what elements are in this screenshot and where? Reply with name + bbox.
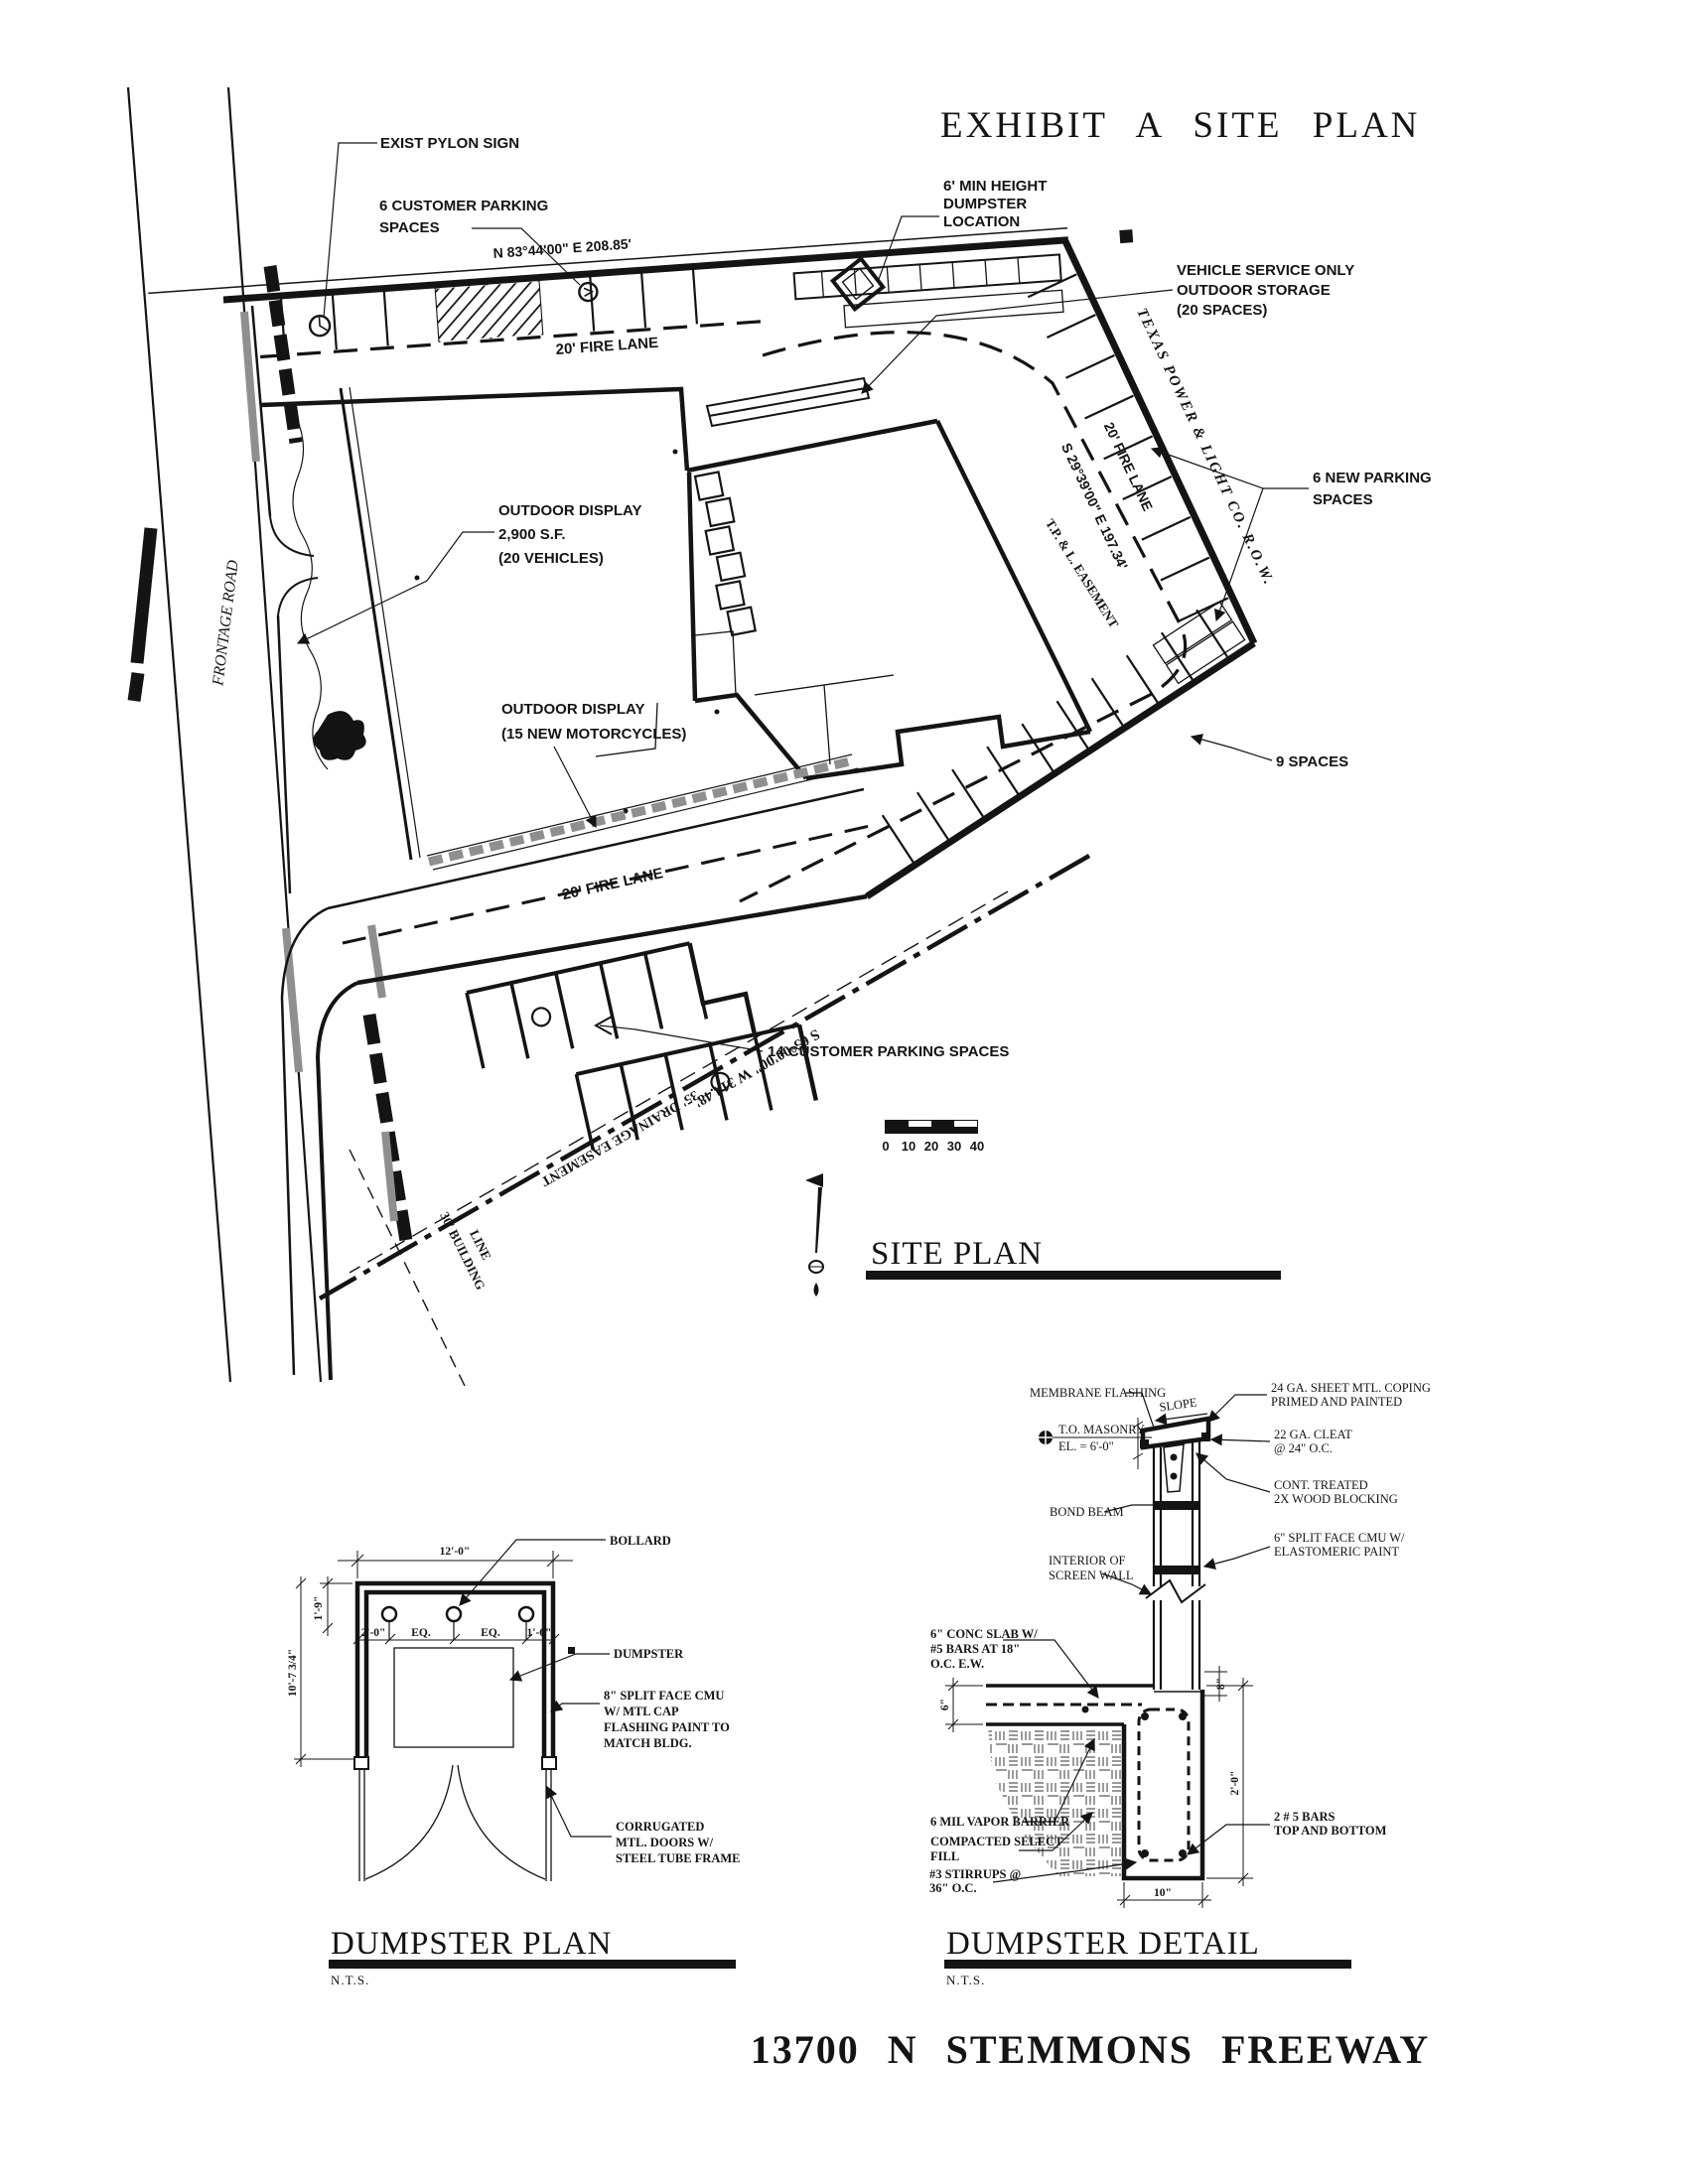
bond-beam-band — [1154, 1501, 1199, 1510]
outdoor-display-label-1: OUTDOOR DISPLAY — [498, 502, 641, 519]
slab-label-1: 6" CONC SLAB W/ — [930, 1627, 1038, 1641]
cleat-label-2: @ 24" O.C. — [1274, 1441, 1333, 1455]
spaces-9-label: 9 SPACES — [1276, 753, 1348, 770]
dumpster-location-label-1: 6' MIN HEIGHT — [943, 178, 1047, 195]
customer-parking-14-label: 14 CUSTOMER PARKING SPACES — [768, 1043, 1009, 1060]
blocking-label-2: 2X WOOD BLOCKING — [1274, 1492, 1398, 1506]
membrane-label: MEMBRANE FLASHING — [1030, 1386, 1166, 1400]
new-parking-6-label-2: SPACES — [1313, 491, 1373, 508]
dumpster-detail-nts: N.T.S. — [946, 1973, 985, 1987]
fill-label-1: COMPACTED SELECT — [930, 1835, 1063, 1848]
bond-beam-label: BOND BEAM — [1050, 1505, 1124, 1519]
survey-dot — [415, 576, 420, 581]
dim-slab-text: 6" — [939, 1699, 951, 1710]
coping-label-1: 24 GA. SHEET MTL. COPING — [1271, 1381, 1431, 1395]
anchor-bolt — [1171, 1454, 1178, 1461]
door-note-3: STEEL TUBE FRAME — [616, 1851, 741, 1865]
dim-right-text: 1'-6" — [527, 1627, 552, 1639]
vehicle-service-label-1: VEHICLE SERVICE ONLY — [1177, 262, 1354, 279]
cleat-label-1: 22 GA. CLEAT — [1274, 1428, 1352, 1441]
plan-cmu-note-3: FLASHING PAINT TO — [604, 1720, 730, 1734]
dim-offset-text: 1'-9" — [313, 1596, 325, 1621]
dim-width-text: 12'-0" — [440, 1546, 471, 1558]
site-plan-sheet: EXHIBIT A SITE PLAN FRONTAGE ROAD N 83°4… — [0, 0, 1688, 2184]
interior-label-1: INTERIOR OF — [1049, 1554, 1125, 1568]
slab-label-3: O.C. E.W. — [930, 1657, 984, 1671]
site-plan-drawing: EXHIBIT A SITE PLAN FRONTAGE ROAD N 83°4… — [0, 0, 1688, 2184]
plan-cmu-note-1: 8" SPLIT FACE CMU — [604, 1689, 724, 1703]
customer-parking-6-label-2: SPACES — [379, 219, 440, 236]
vehicle-service-label-2: OUTDOOR STORAGE — [1177, 282, 1331, 299]
coping-label-2: PRIMED AND PAINTED — [1271, 1395, 1402, 1409]
rebar-dot — [1082, 1706, 1089, 1713]
to-masonry-label-1: T.O. MASONRY — [1058, 1423, 1145, 1436]
door-note-1: CORRUGATED — [616, 1820, 704, 1834]
bollard-label: BOLLARD — [610, 1534, 671, 1548]
motorcycle-display-label-1: OUTDOOR DISPLAY — [501, 701, 644, 718]
dim-footing-depth-text: 2'-0" — [1229, 1771, 1241, 1796]
utility-pole-symbol — [1119, 229, 1133, 243]
dumpster-location-label-2: DUMPSTER — [943, 196, 1027, 212]
footing-bar — [1179, 1712, 1187, 1720]
scale-tick-10: 10 — [902, 1139, 915, 1154]
plan-cmu-note-4: MATCH BLDG. — [604, 1736, 692, 1750]
dim-step-text: 8" — [1215, 1678, 1227, 1690]
scale-tick-40: 40 — [970, 1139, 984, 1154]
joint-band — [1154, 1566, 1199, 1574]
scale-tick-30: 30 — [947, 1139, 961, 1154]
leader-dot — [568, 1647, 575, 1654]
outdoor-display-label-2: 2,900 S.F. — [498, 526, 566, 543]
plan-cmu-note-2: W/ MTL CAP — [604, 1705, 679, 1718]
scale-bar-segment — [954, 1121, 977, 1127]
bars-label-1: 2 # 5 BARS — [1274, 1810, 1336, 1824]
stirrups-label-2: 36" O.C. — [929, 1881, 977, 1895]
dim-eq2-text: EQ. — [481, 1627, 500, 1639]
footing-bar — [1141, 1849, 1149, 1857]
coping-cleat-left — [1140, 1439, 1149, 1448]
coping-cleat-right — [1201, 1433, 1210, 1441]
dumpster-plan-nts: N.T.S. — [331, 1973, 369, 1987]
dumpster-label: DUMPSTER — [614, 1647, 684, 1661]
scale-tick-0: 0 — [882, 1139, 889, 1154]
customer-parking-6-label-1: 6 CUSTOMER PARKING — [379, 198, 548, 214]
anchor-bolt — [1171, 1473, 1178, 1480]
slab-label-2: #5 BARS AT 18" — [930, 1642, 1020, 1656]
site-plan-heading: SITE PLAN — [871, 1236, 1043, 1272]
blocking-label-1: CONT. TREATED — [1274, 1478, 1368, 1492]
detail-cmu-label-1: 6" SPLIT FACE CMU W/ — [1274, 1531, 1405, 1545]
new-parking-6-label-1: 6 NEW PARKING — [1313, 470, 1432, 486]
pylon-sign-label: EXIST PYLON SIGN — [380, 135, 519, 152]
detail-cmu-label-2: ELASTOMERIC PAINT — [1274, 1545, 1399, 1559]
scale-bar-segment — [909, 1121, 931, 1127]
vehicle-service-label-3: (20 SPACES) — [1177, 302, 1267, 319]
door-note-2: MTL. DOORS W/ — [616, 1836, 714, 1849]
hatched-no-parking-area — [436, 282, 542, 341]
dim-eq1-text: EQ. — [411, 1627, 431, 1639]
scale-tick-20: 20 — [924, 1139, 938, 1154]
fill-label-2: FILL — [930, 1849, 959, 1863]
dim-left-text: 2'-0" — [361, 1627, 386, 1639]
exhibit-title: EXHIBIT A SITE PLAN — [940, 105, 1420, 146]
dumpster-detail-underline — [944, 1960, 1351, 1969]
sheet-address: 13700 N STEMMONS FREEWAY — [751, 2027, 1431, 2072]
dim-footing-width-text: 10" — [1154, 1887, 1172, 1899]
dumpster-plan-underline — [329, 1960, 736, 1969]
survey-dot — [715, 710, 720, 715]
stirrups-label-1: #3 STIRRUPS @ — [929, 1867, 1021, 1881]
survey-dot — [673, 450, 678, 455]
outdoor-display-label-3: (20 VEHICLES) — [498, 550, 604, 567]
footing-bar — [1141, 1712, 1149, 1720]
dumpster-plan-heading: DUMPSTER PLAN — [331, 1926, 612, 1962]
to-masonry-label-2: EL. = 6'-0" — [1058, 1439, 1114, 1453]
footing-bar — [1179, 1849, 1187, 1857]
bars-label-2: TOP AND BOTTOM — [1274, 1824, 1387, 1838]
site-plan-underline — [866, 1271, 1281, 1280]
motorcycle-display-label-2: (15 NEW MOTORCYCLES) — [501, 726, 686, 743]
dim-depth-text: 10'-7 3/4" — [287, 1649, 299, 1697]
dumpster-detail-heading: DUMPSTER DETAIL — [946, 1926, 1260, 1962]
dumpster-location-label-3: LOCATION — [943, 213, 1020, 230]
